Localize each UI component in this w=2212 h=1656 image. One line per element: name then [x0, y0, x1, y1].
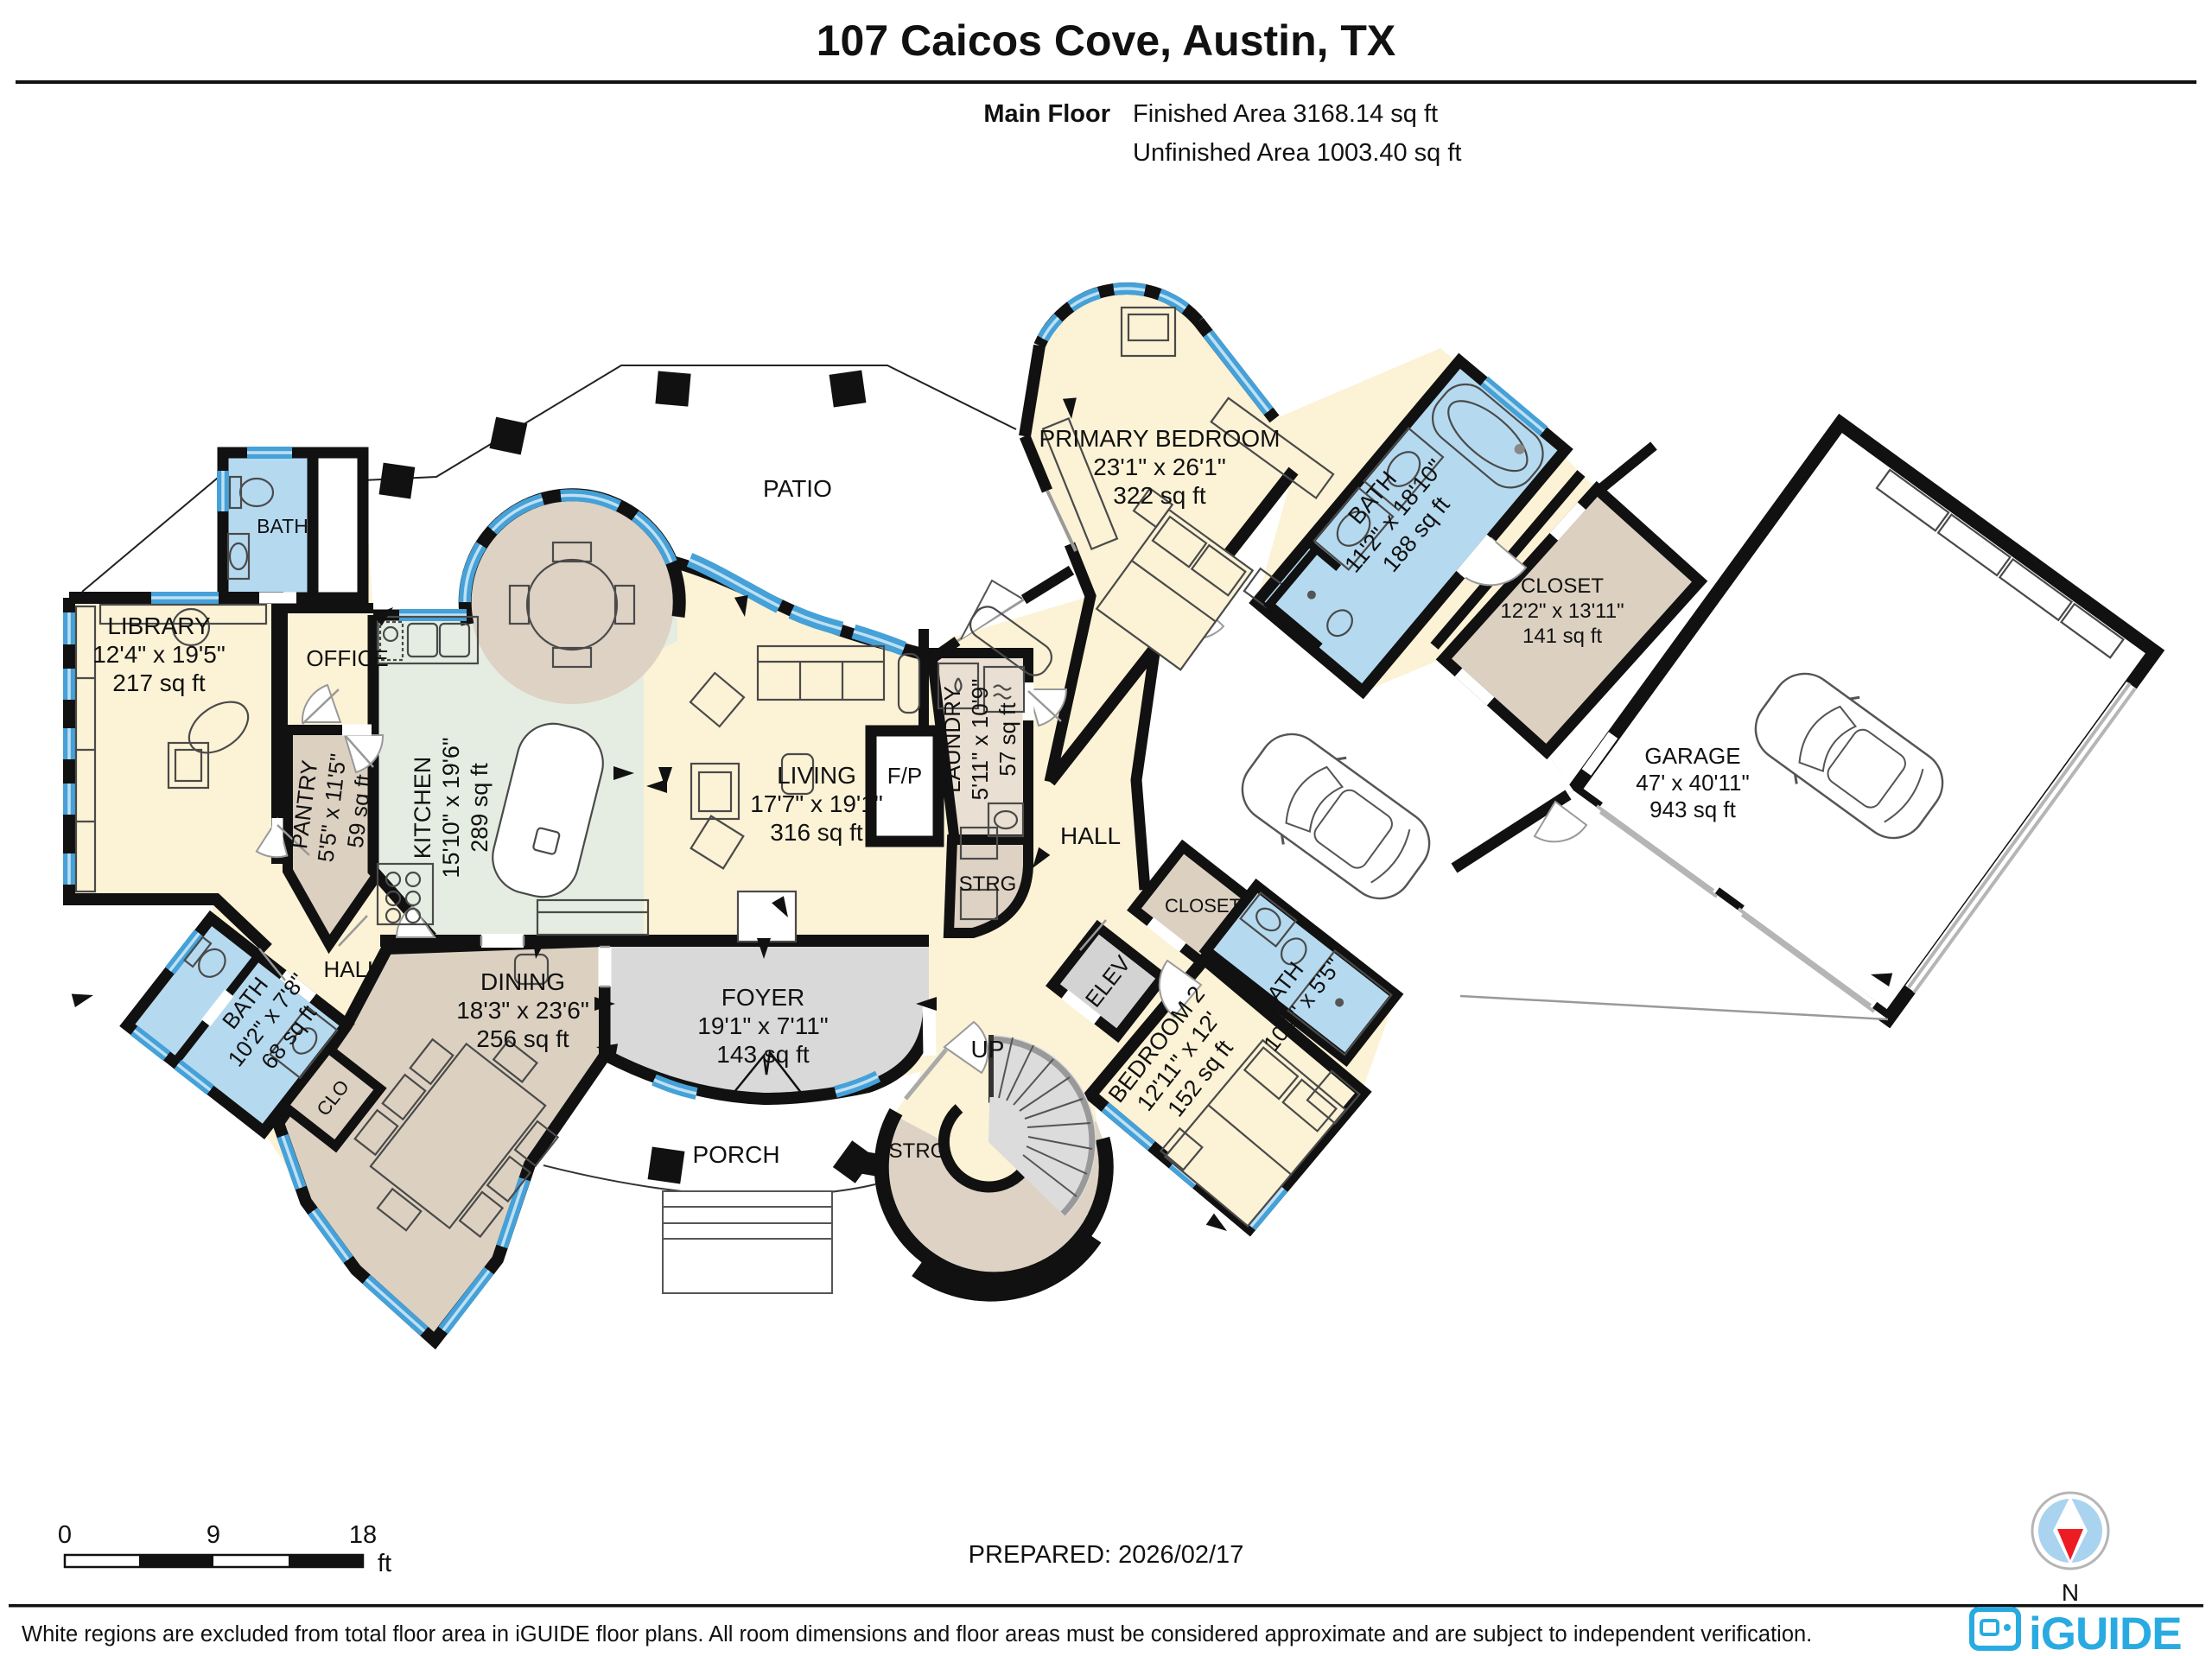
svg-text:217 sq ft: 217 sq ft	[112, 669, 206, 696]
svg-text:943 sq ft: 943 sq ft	[1649, 796, 1737, 822]
svg-text:12'2" x 13'11": 12'2" x 13'11"	[1500, 600, 1624, 623]
svg-text:17'7" x 19'1": 17'7" x 19'1"	[750, 790, 883, 817]
svg-text:316 sq ft: 316 sq ft	[770, 819, 863, 846]
svg-text:18: 18	[349, 1521, 377, 1549]
svg-text:57 sq ft: 57 sq ft	[995, 702, 1020, 777]
svg-text:CLOSET: CLOSET	[1521, 574, 1604, 598]
svg-text:12'4" x 19'5": 12'4" x 19'5"	[92, 641, 226, 668]
svg-text:GARAGE: GARAGE	[1644, 743, 1740, 769]
svg-text:CLOSET: CLOSET	[1165, 895, 1241, 917]
svg-text:BATH: BATH	[257, 515, 308, 537]
svg-text:LIBRARY: LIBRARY	[107, 612, 211, 639]
svg-text:5'11" x 10'9": 5'11" x 10'9"	[967, 679, 993, 801]
svg-text:ft: ft	[378, 1550, 391, 1577]
svg-text:Main Floor: Main Floor	[983, 100, 1110, 128]
svg-text:F/P: F/P	[887, 763, 922, 789]
svg-text:PATIO: PATIO	[763, 475, 832, 502]
svg-text:18'3" x 23'6": 18'3" x 23'6"	[456, 997, 589, 1024]
svg-text:PRIMARY BEDROOM: PRIMARY BEDROOM	[1039, 425, 1280, 452]
svg-text:UP: UP	[971, 1036, 1005, 1063]
svg-text:9: 9	[207, 1521, 220, 1549]
svg-text:256 sq ft: 256 sq ft	[476, 1025, 569, 1052]
svg-text:15'10" x 19'6": 15'10" x 19'6"	[438, 737, 464, 878]
svg-text:LAUNDRY: LAUNDRY	[939, 686, 965, 793]
svg-text:STRG: STRG	[889, 1139, 947, 1163]
svg-text:Unfinished Area 1003.40 sq ft: Unfinished Area 1003.40 sq ft	[1133, 139, 1461, 167]
svg-text:23'1" x 26'1": 23'1" x 26'1"	[1093, 454, 1226, 480]
svg-text:0: 0	[58, 1521, 72, 1549]
svg-text:143 sq ft: 143 sq ft	[716, 1041, 810, 1068]
svg-text:DINING: DINING	[480, 968, 565, 995]
svg-text:141 sq ft: 141 sq ft	[1522, 625, 1602, 648]
svg-text:322 sq ft: 322 sq ft	[1113, 482, 1206, 509]
svg-text:107 Caicos Cove, Austin, TX: 107 Caicos Cove, Austin, TX	[817, 16, 1396, 65]
svg-text:STRG: STRG	[959, 872, 1017, 896]
svg-text:KITCHEN: KITCHEN	[410, 757, 435, 860]
svg-text:47' x 40'11": 47' x 40'11"	[1636, 770, 1749, 796]
svg-text:289 sq ft: 289 sq ft	[467, 763, 493, 853]
svg-text:19'1" x 7'11": 19'1" x 7'11"	[697, 1012, 828, 1039]
svg-text:PORCH: PORCH	[692, 1141, 779, 1168]
svg-text:LIVING: LIVING	[777, 762, 856, 789]
svg-text:iGUIDE: iGUIDE	[2029, 1608, 2182, 1656]
svg-text:N: N	[2062, 1579, 2079, 1606]
svg-text:OFFICE: OFFICE	[306, 645, 388, 671]
svg-text:HALL: HALL	[1060, 822, 1121, 849]
svg-text:Finished Area 3168.14 sq ft: Finished Area 3168.14 sq ft	[1133, 100, 1438, 128]
svg-text:HALL: HALL	[323, 956, 379, 982]
svg-text:FOYER: FOYER	[721, 984, 804, 1011]
svg-text:White regions are excluded fro: White regions are excluded from total fl…	[22, 1622, 1812, 1646]
svg-text:PREPARED: 2026/02/17: PREPARED: 2026/02/17	[969, 1541, 1244, 1569]
